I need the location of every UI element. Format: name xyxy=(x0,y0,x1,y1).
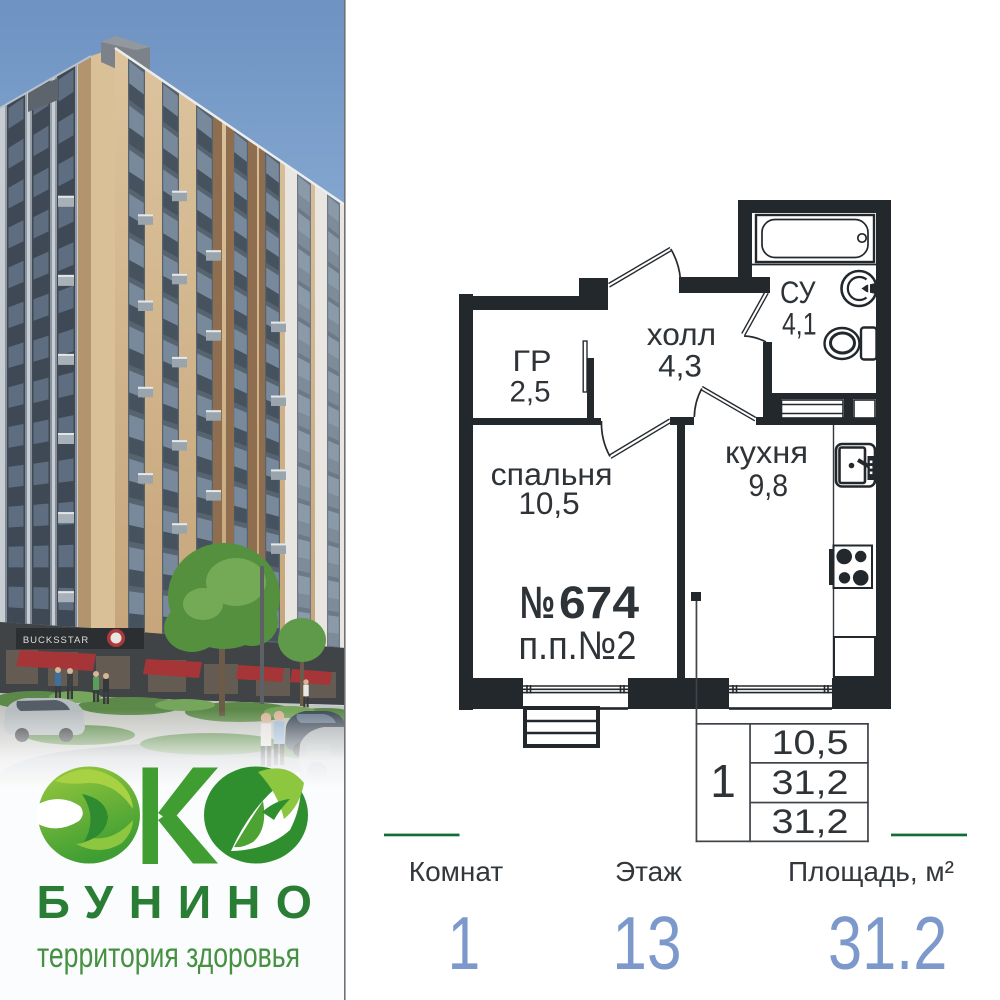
svg-text:1: 1 xyxy=(448,901,481,985)
svg-text:9,8: 9,8 xyxy=(749,467,789,503)
svg-text:Этаж: Этаж xyxy=(615,856,682,887)
svg-text:Площадь, м²: Площадь, м² xyxy=(788,856,954,887)
svg-text:4,1: 4,1 xyxy=(782,306,817,342)
svg-text:ГР: ГР xyxy=(513,345,552,378)
svg-text:10,5: 10,5 xyxy=(518,485,579,521)
svg-text:1: 1 xyxy=(710,755,736,807)
svg-text:31.2: 31.2 xyxy=(828,901,947,985)
svg-text:№: № xyxy=(520,577,555,628)
svg-text:п.п.№2: п.п.№2 xyxy=(519,624,637,668)
svg-text:674: 674 xyxy=(559,577,640,628)
svg-text:10,5: 10,5 xyxy=(772,724,849,762)
svg-text:Комнат: Комнат xyxy=(409,856,504,887)
svg-text:4,3: 4,3 xyxy=(658,348,702,384)
svg-text:31,2: 31,2 xyxy=(772,803,849,841)
svg-text:кухня: кухня xyxy=(725,434,808,470)
svg-text:13: 13 xyxy=(612,901,681,985)
svg-text:31,2: 31,2 xyxy=(772,764,849,802)
svg-text:2,5: 2,5 xyxy=(509,376,550,409)
